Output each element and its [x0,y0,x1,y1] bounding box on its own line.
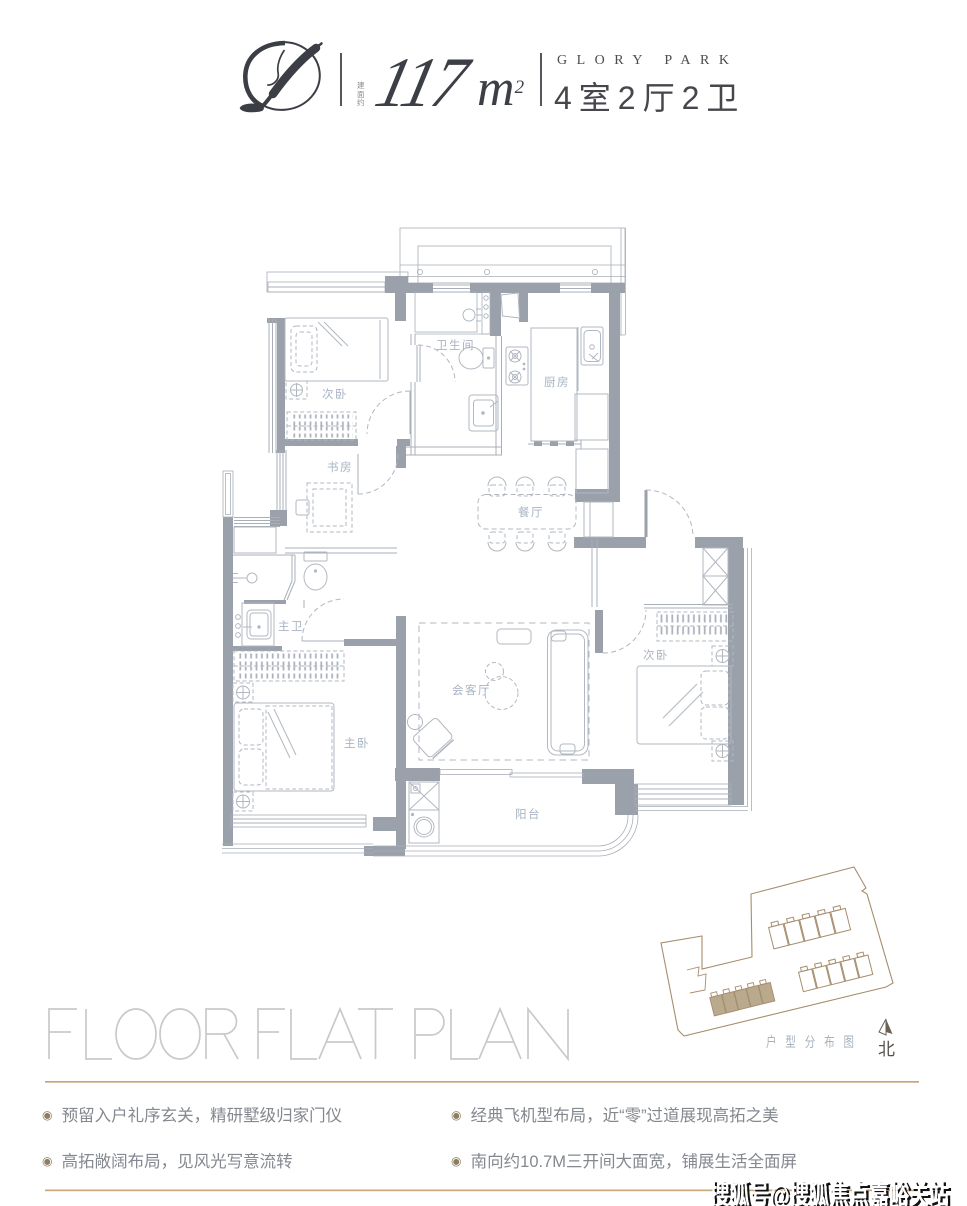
svg-text:厨房: 厨房 [544,376,570,389]
svg-text:会客厅: 会客厅 [452,683,491,697]
svg-text:书房: 书房 [327,461,353,474]
svg-text:阳台: 阳台 [515,807,541,821]
svg-text:次卧: 次卧 [322,387,348,401]
svg-text:北: 北 [878,1040,895,1059]
svg-text:次卧: 次卧 [643,648,669,662]
svg-text:卫生间: 卫生间 [436,338,475,352]
svg-text:主卧: 主卧 [344,737,370,750]
svg-text:主卫: 主卫 [278,620,304,633]
svg-text:户 型 分 布 图: 户 型 分 布 图 [766,1034,857,1050]
svg-text:餐厅: 餐厅 [518,505,544,519]
